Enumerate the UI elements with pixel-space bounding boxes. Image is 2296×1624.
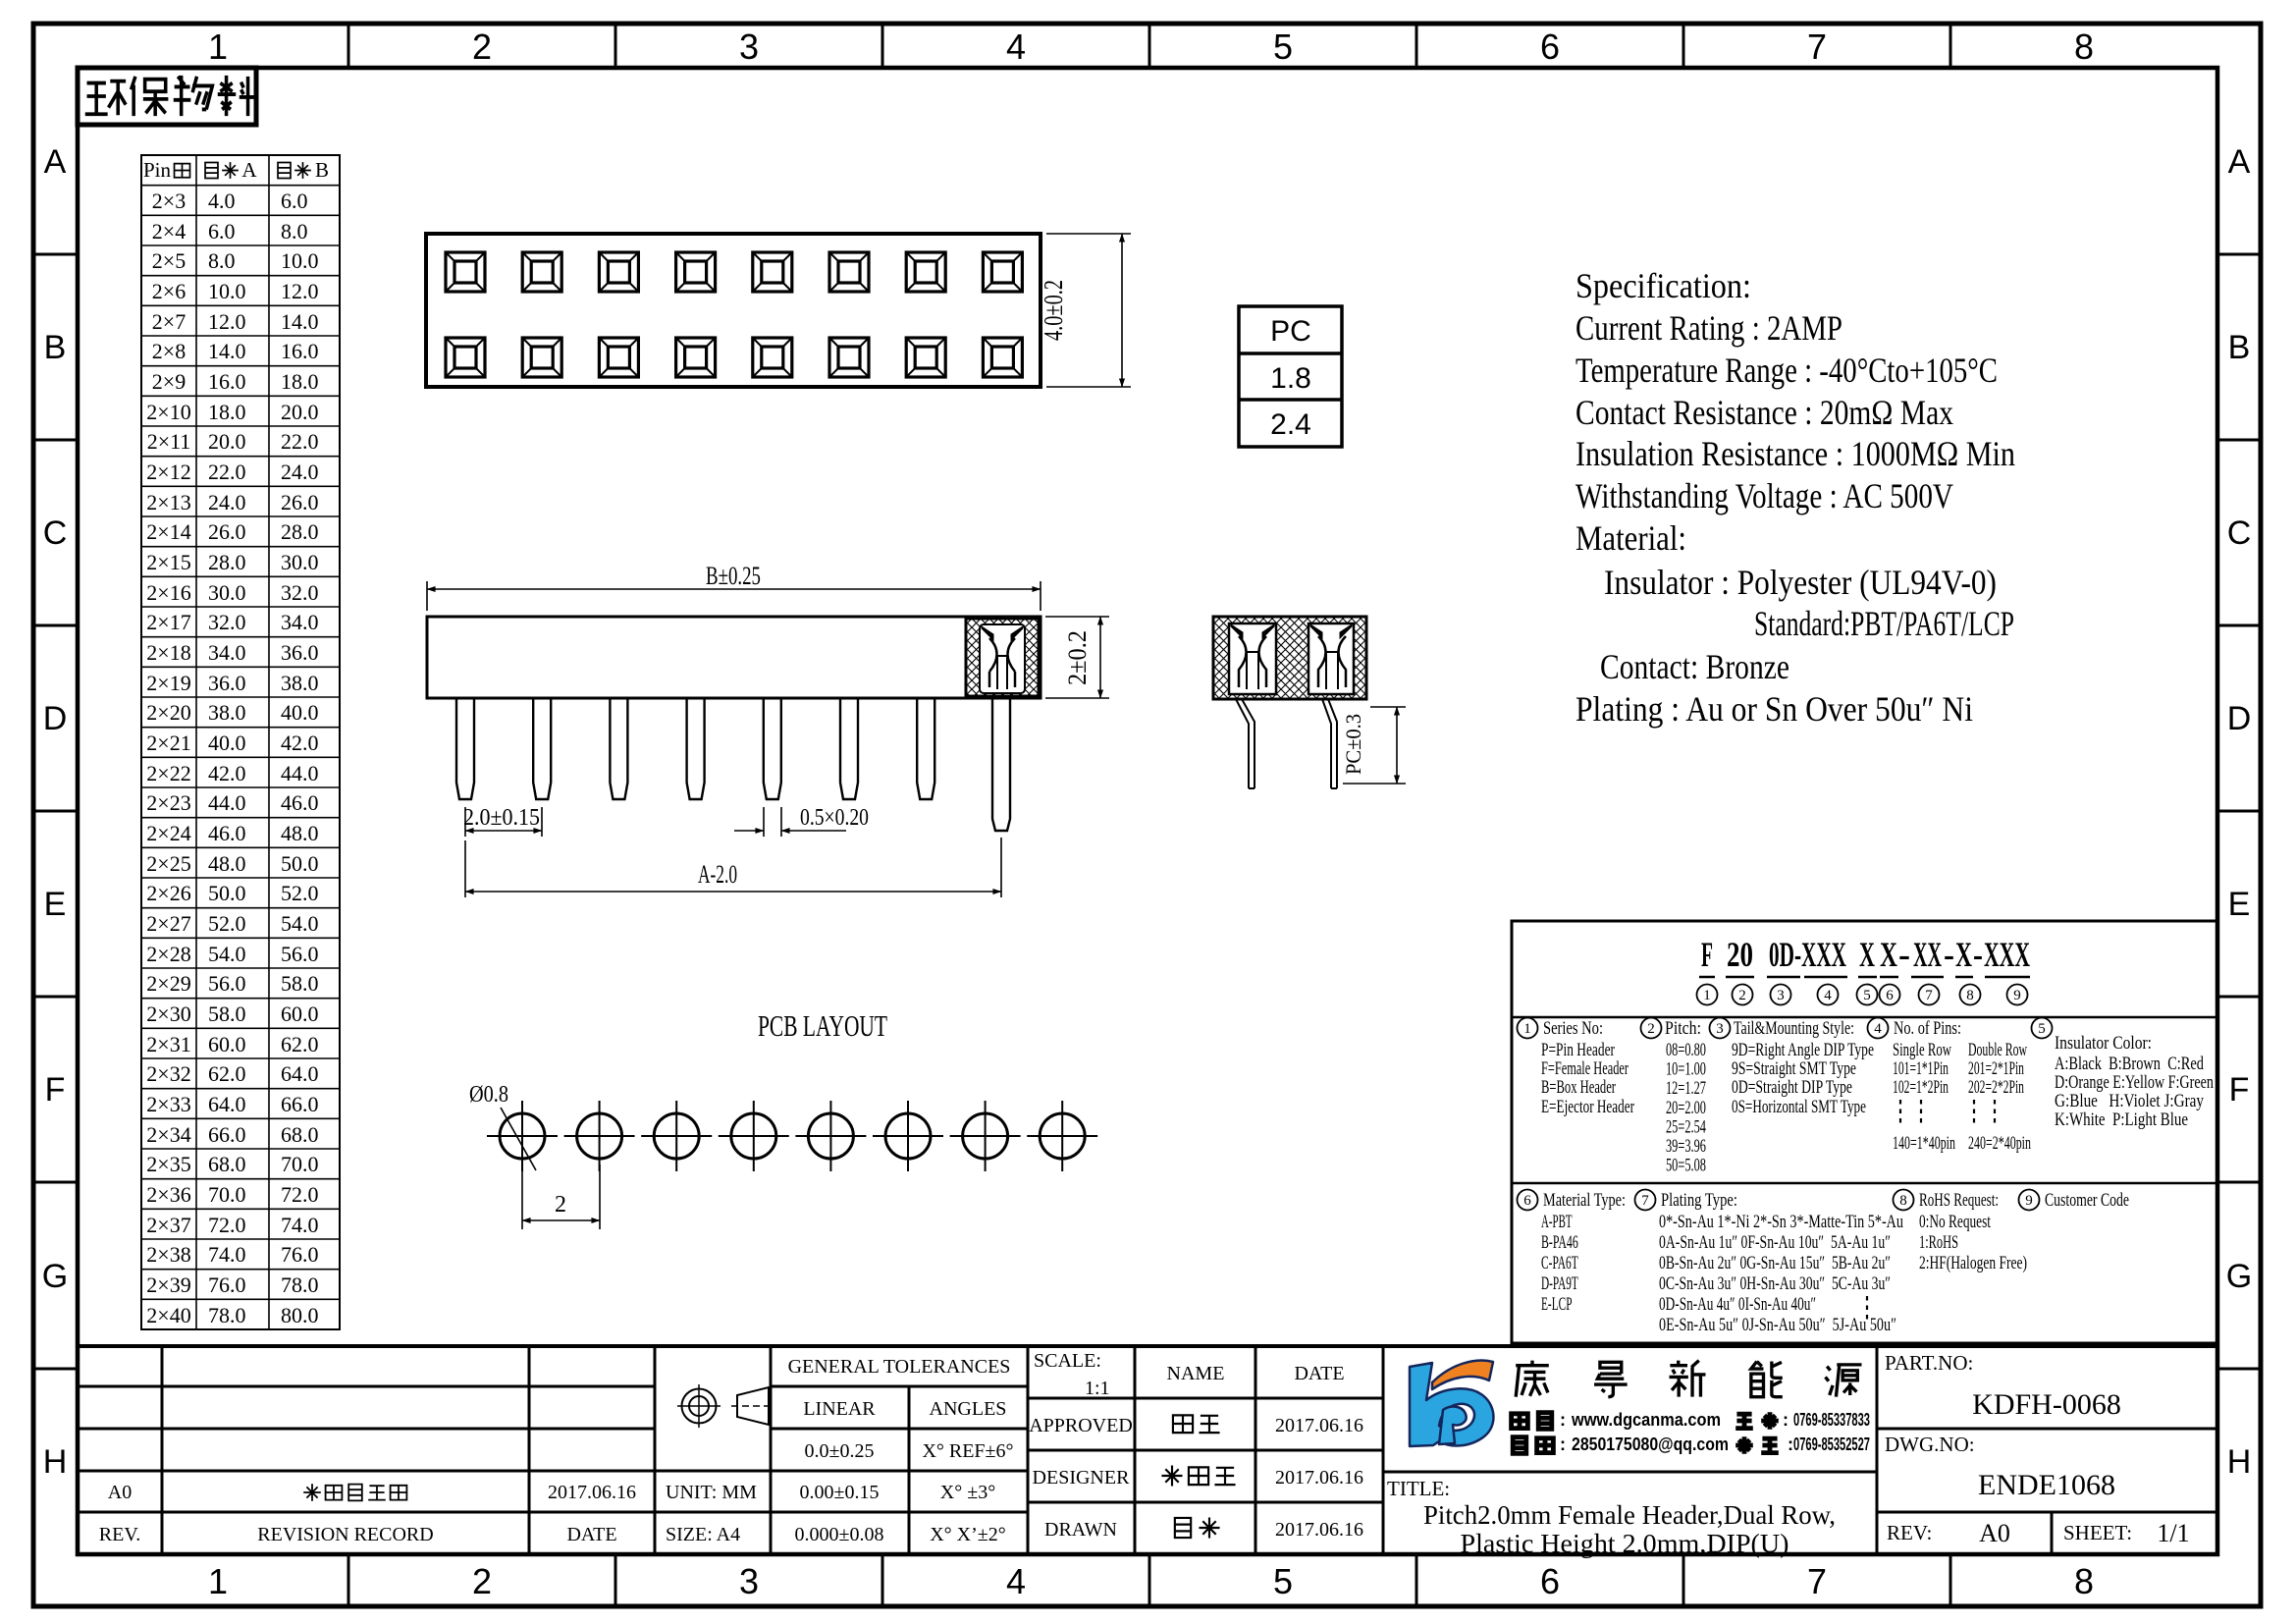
svg-text:Material Type:: Material Type:	[1543, 1191, 1626, 1211]
svg-text:240=2*40pin: 240=2*40pin	[1968, 1134, 2031, 1154]
svg-text:1:1: 1:1	[1085, 1378, 1110, 1399]
svg-text:9: 9	[2025, 1193, 2033, 1209]
svg-text:2×16: 2×16	[146, 580, 190, 605]
svg-text:24.0: 24.0	[281, 460, 319, 484]
svg-text:-: -	[1973, 935, 1983, 974]
svg-text:4.0±0.2: 4.0±0.2	[1039, 280, 1068, 341]
svg-text:2×29: 2×29	[146, 971, 190, 996]
svg-text:2×8: 2×8	[152, 339, 186, 363]
svg-text:B=Box Header: B=Box Header	[1541, 1078, 1616, 1098]
svg-text::: :	[1783, 1410, 1789, 1430]
svg-text:2: 2	[1738, 988, 1746, 1003]
svg-text:2×31: 2×31	[146, 1032, 190, 1056]
svg-text:2.0±0.15: 2.0±0.15	[463, 805, 540, 831]
svg-text:0769-85337833: 0769-85337833	[1793, 1410, 1870, 1430]
svg-text:A-2.0: A-2.0	[698, 860, 737, 889]
svg-text:8: 8	[2074, 1561, 2094, 1601]
svg-text:7: 7	[1641, 1193, 1649, 1209]
svg-text:2×17: 2×17	[146, 610, 190, 634]
svg-text:2×23: 2×23	[146, 790, 190, 815]
svg-text:2×14: 2×14	[146, 519, 190, 544]
svg-text:0S=Horizontal SMT Type: 0S=Horizontal SMT Type	[1732, 1098, 1866, 1117]
svg-text:8: 8	[1899, 1193, 1907, 1209]
svg-text:22.0: 22.0	[208, 460, 246, 484]
svg-text:72.0: 72.0	[208, 1213, 246, 1237]
svg-text:68.0: 68.0	[281, 1122, 319, 1147]
svg-text:20: 20	[1727, 935, 1753, 974]
svg-text:X° X’±2°: X° X’±2°	[930, 1524, 1006, 1545]
svg-text:2±0.2: 2±0.2	[1063, 630, 1092, 685]
svg-text:5: 5	[2038, 1021, 2046, 1037]
svg-text:D-PA9T: D-PA9T	[1541, 1274, 1578, 1294]
svg-text:0*-Sn-Au 1*-Ni 2*-Sn 3*-Matte-: 0*-Sn-Au 1*-Ni 2*-Sn 3*-Matte-Tin 5*-Au	[1659, 1213, 1903, 1232]
svg-text:68.0: 68.0	[208, 1152, 246, 1176]
svg-text:50.0: 50.0	[208, 881, 246, 905]
svg-text:2×38: 2×38	[146, 1242, 190, 1267]
svg-text:4: 4	[1006, 27, 1026, 67]
svg-text:2×11: 2×11	[147, 429, 191, 454]
svg-text:6: 6	[1523, 1193, 1531, 1209]
svg-text:6: 6	[1886, 988, 1894, 1003]
svg-text:2×13: 2×13	[146, 490, 190, 514]
svg-text:62.0: 62.0	[281, 1032, 319, 1056]
svg-text:10.0: 10.0	[281, 248, 319, 273]
svg-text:2×40: 2×40	[146, 1303, 190, 1327]
svg-text:LINEAR: LINEAR	[803, 1398, 876, 1420]
svg-text:2: 2	[472, 1561, 492, 1601]
svg-text:X° REF±6°: X° REF±6°	[922, 1440, 1013, 1462]
svg-text:5: 5	[1273, 1561, 1293, 1601]
svg-text:52.0: 52.0	[281, 881, 319, 905]
svg-text:2017.06.16: 2017.06.16	[1275, 1467, 1363, 1489]
svg-text:76.0: 76.0	[281, 1242, 319, 1267]
svg-text:2×20: 2×20	[146, 700, 190, 725]
svg-text:RoHS Request:: RoHS Request:	[1919, 1191, 1999, 1211]
svg-text:60.0: 60.0	[208, 1032, 246, 1056]
svg-text:-: -	[1898, 935, 1910, 974]
svg-text:38.0: 38.0	[281, 671, 319, 695]
svg-text:2×18: 2×18	[146, 640, 190, 665]
svg-text:2017.06.16: 2017.06.16	[1275, 1519, 1363, 1541]
svg-text:Contact: Bronze: Contact: Bronze	[1600, 647, 1789, 686]
svg-text:6: 6	[1540, 1561, 1560, 1601]
svg-text:SIZE: A4: SIZE: A4	[666, 1524, 740, 1545]
svg-text:D: D	[2227, 700, 2252, 737]
svg-text:202=2*2Pin: 202=2*2Pin	[1968, 1078, 2024, 1098]
svg-text:0D-XXX: 0D-XXX	[1769, 935, 1846, 974]
svg-text:24.0: 24.0	[208, 490, 246, 514]
svg-text:2×22: 2×22	[146, 761, 190, 785]
svg-text:Tail&Mounting Style:: Tail&Mounting Style:	[1734, 1019, 1854, 1039]
svg-text:18.0: 18.0	[208, 400, 246, 424]
svg-text:0:No Request: 0:No Request	[1919, 1213, 1992, 1232]
svg-text:6.0: 6.0	[208, 219, 236, 244]
svg-text:2×5: 2×5	[152, 248, 186, 273]
svg-text:2×24: 2×24	[146, 821, 190, 845]
svg-text:Standard:PBT/PA6T/LCP: Standard:PBT/PA6T/LCP	[1754, 604, 2014, 643]
svg-text:Material:: Material:	[1575, 518, 1686, 558]
svg-text:Pitch:: Pitch:	[1665, 1019, 1701, 1039]
svg-text:4.0: 4.0	[208, 189, 236, 213]
svg-text:DWG.NO:: DWG.NO:	[1885, 1433, 1975, 1456]
svg-text:REVISION RECORD: REVISION RECORD	[257, 1524, 433, 1545]
svg-text:48.0: 48.0	[281, 821, 319, 845]
svg-text:34.0: 34.0	[281, 610, 319, 634]
svg-text:36.0: 36.0	[281, 640, 319, 665]
svg-text:H: H	[2227, 1443, 2252, 1481]
svg-text:ENDE1068: ENDE1068	[1978, 1469, 2115, 1501]
svg-text:G: G	[42, 1258, 68, 1295]
svg-text:40.0: 40.0	[208, 731, 246, 755]
svg-text:0D=Straight DIP Type: 0D=Straight DIP Type	[1732, 1078, 1852, 1098]
svg-text:40.0: 40.0	[281, 700, 319, 725]
svg-text:2×9: 2×9	[152, 369, 186, 394]
svg-text:4: 4	[1874, 1021, 1882, 1037]
svg-text:0.00±0.15: 0.00±0.15	[800, 1482, 880, 1503]
svg-text:20=2.00: 20=2.00	[1666, 1099, 1706, 1118]
svg-text:6.0: 6.0	[281, 189, 308, 213]
svg-text:PC±0.3: PC±0.3	[1341, 714, 1365, 775]
svg-text:26.0: 26.0	[281, 490, 319, 514]
svg-text:3: 3	[1777, 988, 1785, 1003]
svg-text:18.0: 18.0	[281, 369, 319, 394]
svg-text:NAME: NAME	[1167, 1363, 1225, 1384]
svg-text:46.0: 46.0	[281, 790, 319, 815]
svg-text:32.0: 32.0	[208, 610, 246, 634]
svg-text:2×10: 2×10	[146, 400, 190, 424]
svg-text:7: 7	[1807, 27, 1827, 67]
svg-text:12=1.27: 12=1.27	[1666, 1079, 1706, 1099]
svg-text:Insulation Resistance : 1000MΩ: Insulation Resistance : 1000MΩ Min	[1575, 434, 2015, 473]
svg-text:XXX: XXX	[1984, 935, 2030, 974]
svg-text:34.0: 34.0	[208, 640, 246, 665]
svg-text:201=2*1Pin: 201=2*1Pin	[1968, 1059, 2024, 1079]
svg-text:8.0: 8.0	[208, 248, 236, 273]
svg-text:A: A	[241, 158, 257, 182]
svg-text:Plating Type:: Plating Type:	[1661, 1191, 1737, 1211]
svg-text:46.0: 46.0	[208, 821, 246, 845]
svg-text:7: 7	[1807, 1561, 1827, 1601]
svg-text:1: 1	[208, 27, 228, 67]
svg-text:H: H	[43, 1443, 68, 1481]
svg-text:9D=Right Angle DIP Type: 9D=Right Angle DIP Type	[1732, 1041, 1874, 1060]
svg-text:26.0: 26.0	[208, 519, 246, 544]
svg-text:0C-Sn-Au 3u″ 0H-Sn-Au 30u″ 5C: 0C-Sn-Au 3u″ 0H-Sn-Au 30u″ 5C-Au 3u″	[1659, 1274, 1891, 1294]
svg-text:80.0: 80.0	[281, 1303, 319, 1327]
svg-text:4: 4	[1824, 988, 1832, 1003]
svg-text:14.0: 14.0	[208, 339, 246, 363]
svg-text:D: D	[43, 700, 68, 737]
svg-text:8.0: 8.0	[281, 219, 308, 244]
svg-text:E: E	[2228, 886, 2251, 923]
svg-text:2017.06.16: 2017.06.16	[548, 1482, 636, 1503]
svg-text:2×30: 2×30	[146, 1001, 190, 1026]
svg-text:P=Pin Header: P=Pin Header	[1541, 1041, 1615, 1060]
svg-text:2850175080@qq.com: 2850175080@qq.com	[1572, 1435, 1729, 1454]
svg-text:F=Female Header: F=Female Header	[1541, 1059, 1629, 1079]
svg-text:44.0: 44.0	[208, 790, 246, 815]
svg-text:B±0.25: B±0.25	[706, 562, 761, 590]
svg-text:Withstanding Voltage : AC 500V: Withstanding Voltage : AC 500V	[1575, 476, 1953, 515]
svg-text:39=3.96: 39=3.96	[1666, 1137, 1706, 1157]
svg-text:K:White P:Light Blue: K:White P:Light Blue	[2055, 1110, 2188, 1130]
svg-text:G:Blue H:Violet J:Gray: G:Blue H:Violet J:Gray	[2055, 1092, 2205, 1111]
svg-text:1/1: 1/1	[2157, 1519, 2189, 1547]
svg-text:1.8: 1.8	[1270, 362, 1311, 395]
svg-text:9: 9	[2013, 988, 2021, 1003]
svg-text:B: B	[315, 158, 329, 182]
svg-text:2×3: 2×3	[152, 189, 186, 213]
svg-text:28.0: 28.0	[281, 519, 319, 544]
svg-text:42.0: 42.0	[281, 731, 319, 755]
svg-text:2017.06.16: 2017.06.16	[1275, 1415, 1363, 1436]
svg-text:Current Rating : 2AMP: Current Rating : 2AMP	[1575, 308, 1842, 348]
svg-text:C-PA6T: C-PA6T	[1541, 1254, 1578, 1273]
svg-text:08=0.80: 08=0.80	[1666, 1041, 1706, 1060]
svg-text:66.0: 66.0	[208, 1122, 246, 1147]
svg-text:6: 6	[1540, 27, 1560, 67]
svg-text:2×33: 2×33	[146, 1092, 190, 1116]
svg-text:0E-Sn-Au 5u″ 0J-Sn-Au 50u″ 5J: 0E-Sn-Au 5u″ 0J-Sn-Au 50u″ 5J-Au 50u″	[1659, 1316, 1896, 1335]
svg-text:F: F	[2229, 1071, 2250, 1109]
svg-text:0D-Sn-Au 4u″ 0I-Sn-Au 40u″: 0D-Sn-Au 4u″ 0I-Sn-Au 40u″	[1659, 1295, 1816, 1315]
svg-text:Pitch2.0mm Female Header,Dual: Pitch2.0mm Female Header,Dual Row,	[1423, 1500, 1836, 1530]
svg-text:DATE: DATE	[1294, 1363, 1344, 1384]
svg-text:56.0: 56.0	[281, 942, 319, 966]
svg-text:101=1*1Pin: 101=1*1Pin	[1893, 1059, 1949, 1079]
svg-text:Temperature Range : -40°Cto+10: Temperature Range : -40°Cto+105°C	[1575, 351, 1998, 390]
svg-text:-: -	[1944, 935, 1954, 974]
svg-text:DESIGNER: DESIGNER	[1033, 1467, 1131, 1489]
svg-text:12.0: 12.0	[208, 309, 246, 334]
svg-text:2×28: 2×28	[146, 942, 190, 966]
svg-text:F: F	[1701, 935, 1713, 974]
svg-text:Plating : Au or Sn Over 50u″ N: Plating : Au or Sn Over 50u″ Ni	[1575, 689, 1973, 729]
svg-text:C: C	[2227, 514, 2252, 552]
svg-text:2.4: 2.4	[1270, 408, 1311, 441]
svg-text:GENERAL TOLERANCES: GENERAL TOLERANCES	[788, 1356, 1011, 1378]
svg-text:Plastic Height 2.0mm,DIP(U): Plastic Height 2.0mm,DIP(U)	[1461, 1529, 1789, 1558]
svg-text:2×35: 2×35	[146, 1152, 190, 1176]
svg-text:SCALE:: SCALE:	[1034, 1350, 1101, 1372]
svg-text:22.0: 22.0	[281, 429, 319, 454]
svg-text:50=5.08: 50=5.08	[1666, 1157, 1706, 1176]
svg-text:ANGLES: ANGLES	[930, 1398, 1007, 1420]
svg-text:UNIT: MM: UNIT: MM	[666, 1482, 757, 1503]
svg-text:32.0: 32.0	[281, 580, 319, 605]
svg-text:66.0: 66.0	[281, 1092, 319, 1116]
svg-text:0.5×0.20: 0.5×0.20	[800, 805, 869, 831]
svg-text:25=2.54: 25=2.54	[1666, 1117, 1706, 1137]
svg-text:2×37: 2×37	[146, 1213, 190, 1237]
svg-text:70.0: 70.0	[208, 1182, 246, 1207]
svg-text:B-PA46: B-PA46	[1541, 1233, 1578, 1253]
svg-text:www.dgcanma.com: www.dgcanma.com	[1571, 1410, 1721, 1430]
svg-text:58.0: 58.0	[281, 971, 319, 996]
svg-text:14.0: 14.0	[281, 309, 319, 334]
svg-text:76.0: 76.0	[208, 1272, 246, 1297]
svg-text:2×4: 2×4	[152, 219, 186, 244]
svg-text:2×34: 2×34	[146, 1122, 190, 1147]
svg-text:D:Orange E:Yellow F:Green: D:Orange E:Yellow F:Green	[2055, 1073, 2214, 1093]
svg-text:2×36: 2×36	[146, 1182, 190, 1207]
svg-text:PCB LAYOUT: PCB LAYOUT	[758, 1008, 887, 1043]
svg-text:78.0: 78.0	[281, 1272, 319, 1297]
svg-text:APPROVED: APPROVED	[1029, 1415, 1133, 1436]
svg-text:0B-Sn-Au 2u″ 0G-Sn-Au 15u″ 5B: 0B-Sn-Au 2u″ 0G-Sn-Au 15u″ 5B-Au 2u″	[1659, 1254, 1891, 1273]
svg-text:16.0: 16.0	[281, 339, 319, 363]
svg-text:A: A	[2228, 143, 2251, 181]
svg-text:78.0: 78.0	[208, 1303, 246, 1327]
svg-text:8: 8	[2074, 27, 2094, 67]
svg-text:0.0±0.25: 0.0±0.25	[805, 1440, 875, 1462]
svg-text:3: 3	[1716, 1021, 1724, 1037]
svg-text:A-PBT: A-PBT	[1541, 1213, 1573, 1232]
svg-text:2:HF(Halogen Free): 2:HF(Halogen Free)	[1919, 1254, 2027, 1273]
svg-text:Insulator Color:: Insulator Color:	[2055, 1034, 2152, 1054]
svg-text:16.0: 16.0	[208, 369, 246, 394]
svg-text:20.0: 20.0	[281, 400, 319, 424]
svg-text:1: 1	[208, 1561, 228, 1601]
svg-text:TITLE:: TITLE:	[1387, 1477, 1450, 1500]
svg-text:E-LCP: E-LCP	[1541, 1295, 1573, 1315]
svg-text:REV:: REV:	[1887, 1521, 1932, 1544]
svg-text:5: 5	[1273, 27, 1293, 67]
svg-text:2×26: 2×26	[146, 881, 190, 905]
svg-text:70.0: 70.0	[281, 1152, 319, 1176]
svg-text:1: 1	[1523, 1021, 1531, 1037]
svg-text:30.0: 30.0	[281, 550, 319, 574]
svg-text:PC: PC	[1270, 315, 1311, 348]
svg-text:7: 7	[1925, 988, 1933, 1003]
svg-text:XX: XX	[1913, 935, 1942, 974]
svg-text:28.0: 28.0	[208, 550, 246, 574]
svg-text:Ø0.8: Ø0.8	[469, 1082, 508, 1108]
svg-text:8: 8	[1966, 988, 1974, 1003]
svg-text:REV.: REV.	[99, 1524, 140, 1545]
svg-text:2×39: 2×39	[146, 1272, 190, 1297]
svg-text:B: B	[2228, 329, 2251, 366]
svg-text:2×15: 2×15	[146, 550, 190, 574]
svg-text:2: 2	[555, 1192, 566, 1218]
svg-text:Specification:: Specification:	[1575, 266, 1751, 305]
svg-text:2×21: 2×21	[146, 731, 190, 755]
svg-text:Pin: Pin	[143, 158, 172, 182]
svg-text:2: 2	[472, 27, 492, 67]
svg-text:44.0: 44.0	[281, 761, 319, 785]
svg-text:102=1*2Pin: 102=1*2Pin	[1893, 1078, 1949, 1098]
svg-text:140=1*40pin: 140=1*40pin	[1893, 1134, 1955, 1154]
svg-text:54.0: 54.0	[281, 911, 319, 936]
svg-text:3: 3	[739, 27, 759, 67]
svg-text:A0: A0	[108, 1482, 132, 1503]
svg-text:56.0: 56.0	[208, 971, 246, 996]
svg-text:Series No:: Series No:	[1543, 1019, 1603, 1039]
svg-text:E: E	[44, 886, 67, 923]
svg-text:0A-Sn-Au 1u″ 0F-Sn-Au 10u″ 5A: 0A-Sn-Au 1u″ 0F-Sn-Au 10u″ 5A-Au 1u″	[1659, 1233, 1891, 1253]
svg-text:1: 1	[1703, 988, 1711, 1003]
svg-text:E=Ejector Header: E=Ejector Header	[1541, 1098, 1634, 1117]
svg-text:2×7: 2×7	[152, 309, 186, 334]
svg-text:64.0: 64.0	[281, 1061, 319, 1086]
svg-text:No. of Pins:: No. of Pins:	[1894, 1019, 1961, 1039]
svg-text:Double Row: Double Row	[1968, 1041, 2027, 1060]
svg-text:9S=Straight SMT Type: 9S=Straight SMT Type	[1732, 1059, 1856, 1079]
svg-text:12.0: 12.0	[281, 279, 319, 303]
svg-text:X: X	[1859, 935, 1875, 974]
svg-text:64.0: 64.0	[208, 1092, 246, 1116]
svg-text:10=1.00: 10=1.00	[1666, 1060, 1706, 1080]
svg-text:4: 4	[1006, 1561, 1026, 1601]
svg-text:30.0: 30.0	[208, 580, 246, 605]
svg-text:48.0: 48.0	[208, 851, 246, 876]
svg-text:38.0: 38.0	[208, 700, 246, 725]
svg-text:42.0: 42.0	[208, 761, 246, 785]
svg-text:DATE: DATE	[566, 1524, 616, 1545]
svg-text:36.0: 36.0	[208, 671, 246, 695]
svg-text:20.0: 20.0	[208, 429, 246, 454]
svg-text:5: 5	[1863, 988, 1871, 1003]
svg-text:2×25: 2×25	[146, 851, 190, 876]
svg-text:58.0: 58.0	[208, 1001, 246, 1026]
svg-text:52.0: 52.0	[208, 911, 246, 936]
svg-text:Contact Resistance : 20mΩ Max: Contact Resistance : 20mΩ Max	[1575, 393, 1953, 432]
svg-text:72.0: 72.0	[281, 1182, 319, 1207]
svg-text:74.0: 74.0	[208, 1242, 246, 1267]
svg-text:SHEET:: SHEET:	[2063, 1521, 2132, 1544]
svg-text:50.0: 50.0	[281, 851, 319, 876]
svg-text:X: X	[1955, 935, 1972, 974]
svg-text:A: A	[44, 143, 67, 181]
svg-text:A0: A0	[1979, 1519, 2010, 1547]
svg-text:A:Black B:Brown C:Red: A:Black B:Brown C:Red	[2055, 1055, 2205, 1074]
svg-text:60.0: 60.0	[281, 1001, 319, 1026]
svg-text:Single Row: Single Row	[1893, 1041, 1951, 1060]
svg-text:54.0: 54.0	[208, 942, 246, 966]
svg-text:2×12: 2×12	[146, 460, 190, 484]
svg-text:0.000±0.08: 0.000±0.08	[795, 1524, 884, 1545]
svg-text:2×27: 2×27	[146, 911, 190, 936]
svg-text:C: C	[43, 514, 68, 552]
svg-text:2×6: 2×6	[152, 279, 186, 303]
svg-text:1:RoHS: 1:RoHS	[1919, 1233, 1958, 1253]
svg-text:62.0: 62.0	[208, 1061, 246, 1086]
svg-text:B: B	[44, 329, 67, 366]
svg-text:2×19: 2×19	[146, 671, 190, 695]
svg-text:74.0: 74.0	[281, 1213, 319, 1237]
svg-text:F: F	[45, 1071, 66, 1109]
svg-text:Insulator : Polyester (UL94V-0: Insulator : Polyester (UL94V-0)	[1604, 563, 1997, 602]
svg-text:2×32: 2×32	[146, 1061, 190, 1086]
svg-text:G: G	[2226, 1258, 2252, 1295]
svg-text:KDFH-0068: KDFH-0068	[1972, 1388, 2121, 1421]
svg-text::: :	[1560, 1410, 1566, 1430]
svg-text:10.0: 10.0	[208, 279, 246, 303]
svg-text:DRAWN: DRAWN	[1044, 1519, 1117, 1541]
svg-text:PART.NO:: PART.NO:	[1885, 1351, 1973, 1375]
svg-text:3: 3	[739, 1561, 759, 1601]
svg-text:Customer Code: Customer Code	[2045, 1191, 2129, 1211]
svg-text:X: X	[1880, 935, 1897, 974]
svg-text::: :	[1560, 1435, 1566, 1454]
svg-text:2: 2	[1647, 1021, 1655, 1037]
svg-text:0769-85352527: 0769-85352527	[1793, 1435, 1870, 1454]
svg-text:X° ±3°: X° ±3°	[940, 1482, 995, 1503]
